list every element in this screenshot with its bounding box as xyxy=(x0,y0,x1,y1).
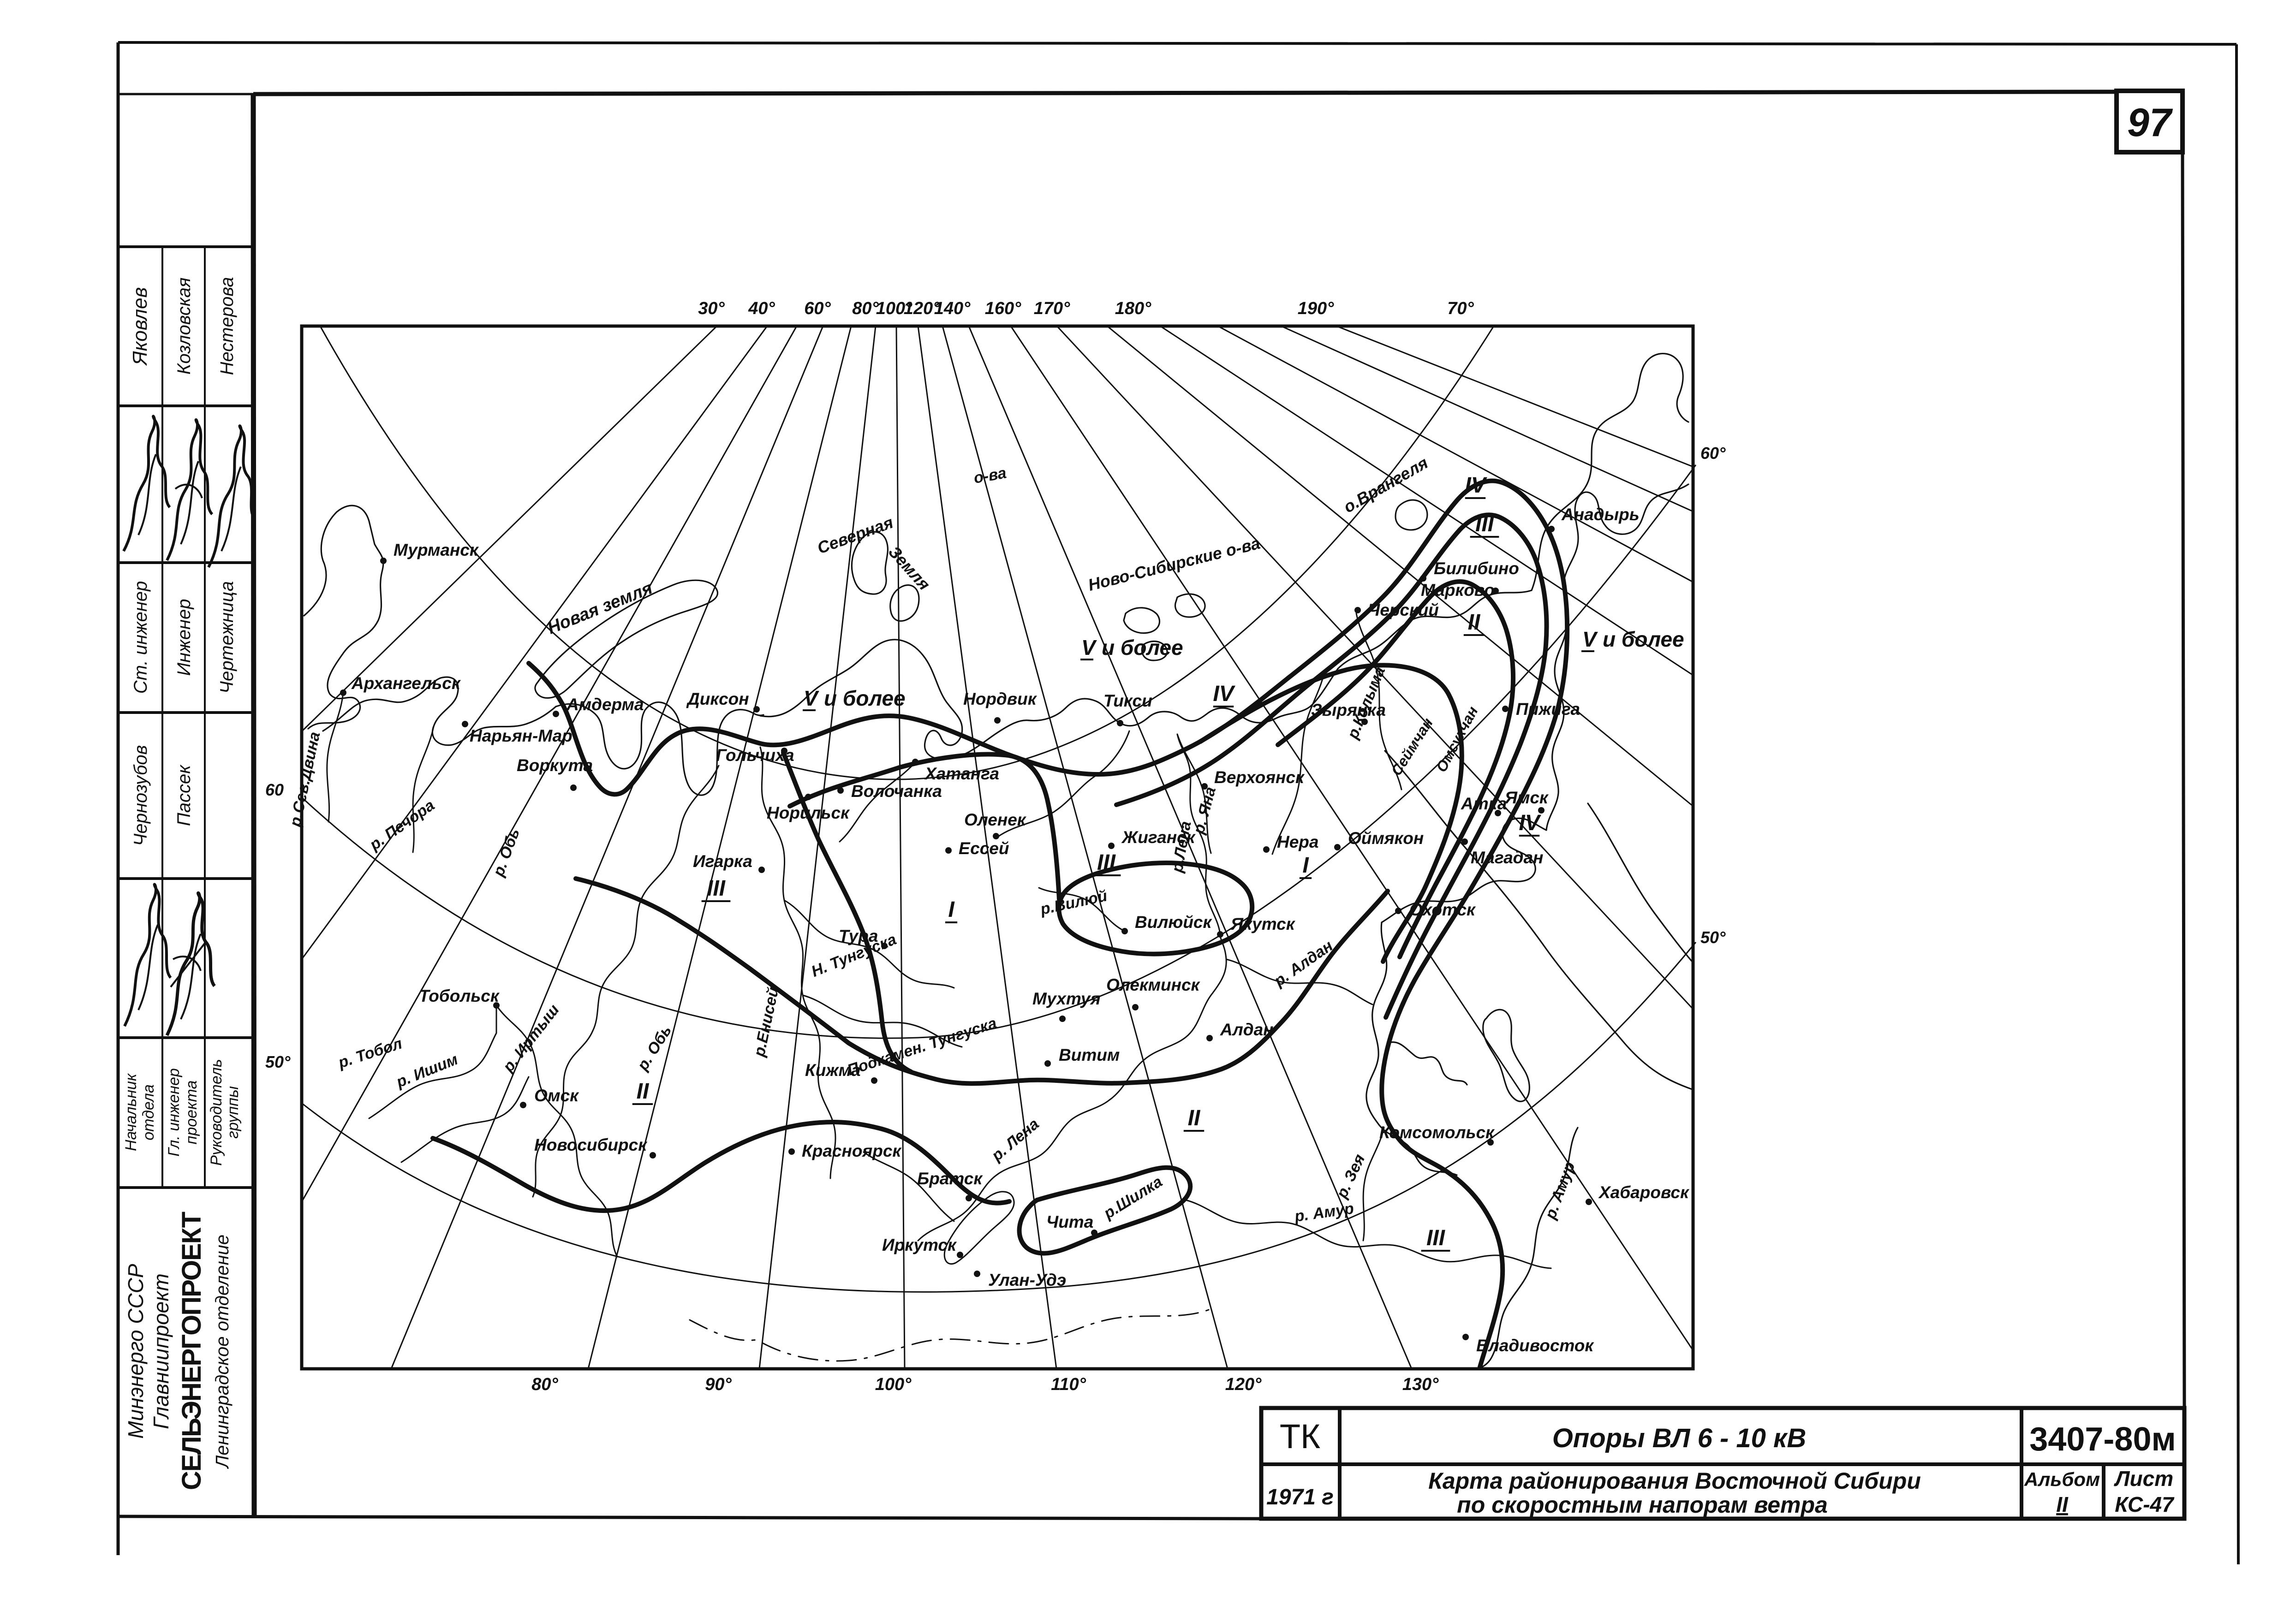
svg-text:Мухтуя: Мухтуя xyxy=(1032,989,1101,1008)
svg-text:80°: 80° xyxy=(531,1375,558,1394)
svg-text:II: II xyxy=(2056,1492,2069,1516)
svg-text:I: I xyxy=(1302,853,1309,878)
svg-text:Начальник: Начальник xyxy=(122,1073,140,1151)
svg-text:Ессей: Ессей xyxy=(959,839,1009,858)
svg-text:IV: IV xyxy=(1519,811,1541,835)
svg-text:1971 г: 1971 г xyxy=(1266,1485,1334,1509)
svg-text:и более: и более xyxy=(824,686,906,710)
svg-text:100°: 100° xyxy=(875,1375,912,1394)
svg-text:Братск: Братск xyxy=(917,1169,983,1188)
svg-text:Мурманск: Мурманск xyxy=(394,541,479,559)
svg-text:130°: 130° xyxy=(1402,1375,1439,1394)
svg-text:160°: 160° xyxy=(985,299,1021,318)
svg-text:Инженер: Инженер xyxy=(174,599,194,676)
svg-text:Вилюйск: Вилюйск xyxy=(1135,913,1213,932)
svg-text:I: I xyxy=(948,897,955,922)
svg-text:Чита: Чита xyxy=(1046,1212,1093,1231)
svg-text:IV: IV xyxy=(1465,473,1487,498)
svg-text:Яковлев: Яковлев xyxy=(129,287,151,366)
svg-text:Омск: Омск xyxy=(534,1086,579,1105)
svg-text:Ст. инженер: Ст. инженер xyxy=(131,581,151,694)
svg-text:Ямск: Ямск xyxy=(1504,788,1549,807)
svg-text:50°: 50° xyxy=(1700,928,1726,947)
svg-text:180°: 180° xyxy=(1115,299,1151,318)
svg-text:60°: 60° xyxy=(1700,444,1726,463)
svg-text:и более: и более xyxy=(1603,627,1684,651)
svg-text:Тобольск: Тобольск xyxy=(419,986,500,1005)
svg-text:Владивосток: Владивосток xyxy=(1476,1336,1594,1355)
svg-text:и более: и более xyxy=(1102,636,1183,659)
svg-text:50°: 50° xyxy=(265,1052,291,1071)
svg-text:Чернозубов: Чернозубов xyxy=(131,745,151,846)
svg-text:30°: 30° xyxy=(698,299,725,318)
svg-text:Нордвик: Нордвик xyxy=(963,689,1038,708)
svg-text:Альбом: Альбом xyxy=(2024,1468,2100,1490)
svg-text:Пижига: Пижига xyxy=(1516,700,1580,719)
svg-text:Гольчиха: Гольчиха xyxy=(716,746,794,765)
svg-text:Ленинградское отделение: Ленинградское отделение xyxy=(212,1235,233,1469)
svg-text:КС-47: КС-47 xyxy=(2115,1492,2175,1516)
svg-text:Анадырь: Анадырь xyxy=(1561,505,1640,524)
svg-text:Нарьян-Мар: Нарьян-Мар xyxy=(470,726,573,745)
svg-text:70°: 70° xyxy=(1447,299,1474,318)
svg-text:110°: 110° xyxy=(1051,1375,1086,1394)
svg-text:Лист: Лист xyxy=(2114,1467,2173,1491)
svg-text:Волочанка: Волочанка xyxy=(851,782,942,801)
svg-text:Тикси: Тикси xyxy=(1103,691,1152,710)
svg-text:Карта районирования Вос: Карта районирования Восточной Сибири xyxy=(1428,1468,1921,1494)
svg-text:ТК: ТК xyxy=(1280,1417,1320,1456)
svg-text:отдела: отдела xyxy=(140,1084,157,1141)
svg-text:Оймякон: Оймякон xyxy=(1348,829,1424,848)
svg-text:Нера: Нера xyxy=(1277,832,1318,851)
svg-text:Билибино: Билибино xyxy=(1434,559,1519,578)
svg-text:Оленек: Оленек xyxy=(964,810,1027,829)
svg-text:СЕЛЬЭНЕРГОПРОЕКТ: СЕЛЬЭНЕРГОПРОЕКТ xyxy=(177,1212,207,1490)
svg-text:V: V xyxy=(1582,627,1598,651)
svg-text:Верхоянск: Верхоянск xyxy=(1214,768,1305,787)
svg-text:V: V xyxy=(804,686,819,710)
svg-text:Опоры ВЛ 6 - 10 кВ: Опоры ВЛ 6 - 10 кВ xyxy=(1552,1423,1807,1453)
svg-text:Алдан: Алдан xyxy=(1220,1020,1274,1039)
svg-text:Магадан: Магадан xyxy=(1471,848,1544,867)
svg-text:Витим: Витим xyxy=(1059,1046,1120,1064)
svg-text:120°: 120° xyxy=(1225,1375,1262,1394)
svg-text:Козловская: Козловская xyxy=(174,278,194,374)
svg-text:190°: 190° xyxy=(1298,299,1334,318)
svg-text:Хатанга: Хатанга xyxy=(924,764,999,783)
svg-text:Чертежница: Чертежница xyxy=(217,581,237,694)
svg-text:Пассек: Пассек xyxy=(174,764,194,826)
svg-text:Нестерова: Нестерова xyxy=(217,277,237,375)
svg-text:Норильск: Норильск xyxy=(767,803,850,822)
svg-text:60: 60 xyxy=(265,780,284,799)
svg-text:140°: 140° xyxy=(934,299,971,318)
svg-text:III: III xyxy=(1097,850,1116,875)
svg-text:60°: 60° xyxy=(804,299,831,318)
svg-text:Новосибирск: Новосибирск xyxy=(534,1135,648,1154)
svg-text:Диксон: Диксон xyxy=(686,689,749,708)
svg-text:80°: 80° xyxy=(852,299,879,318)
svg-text:40°: 40° xyxy=(748,299,775,318)
svg-text:Якутск: Якутск xyxy=(1230,915,1296,933)
svg-text:II: II xyxy=(1188,1106,1201,1130)
svg-text:Марково: Марково xyxy=(1421,581,1495,600)
svg-text:Руководитель: Руководитель xyxy=(208,1059,225,1165)
svg-text:III: III xyxy=(1426,1226,1446,1250)
svg-text:Охотск: Охотск xyxy=(1409,900,1476,919)
svg-text:Олекминск: Олекминск xyxy=(1106,975,1201,994)
svg-text:Гл. инженер: Гл. инженер xyxy=(165,1068,183,1157)
svg-text:90°: 90° xyxy=(705,1375,732,1394)
svg-text:Воркута: Воркута xyxy=(517,756,593,775)
svg-text:проекта: проекта xyxy=(183,1081,200,1145)
svg-text:V: V xyxy=(1081,636,1097,659)
svg-text:Амдерма: Амдерма xyxy=(566,695,644,714)
svg-text:III: III xyxy=(1475,512,1495,536)
svg-text:Архангельск: Архангельск xyxy=(351,674,461,693)
svg-text:Главниипроект: Главниипроект xyxy=(149,1273,173,1429)
svg-text:II: II xyxy=(1468,610,1481,635)
svg-text:Хабаровск: Хабаровск xyxy=(1598,1183,1690,1202)
svg-text:IV: IV xyxy=(1213,682,1235,706)
svg-text:Черский: Черский xyxy=(1368,600,1439,619)
svg-text:Комсомольск: Комсомольск xyxy=(1379,1123,1495,1142)
svg-text:III: III xyxy=(707,876,726,901)
svg-text:97: 97 xyxy=(2127,101,2173,145)
svg-text:170°: 170° xyxy=(1034,299,1070,318)
svg-text:Красноярск: Красноярск xyxy=(802,1141,902,1160)
svg-text:Улан-Удэ: Улан-Удэ xyxy=(988,1271,1066,1289)
svg-text:Атка: Атка xyxy=(1461,794,1507,813)
svg-text:по скоростным напорам: по скоростным напорам ветра xyxy=(1457,1492,1828,1518)
svg-text:3407-80м: 3407-80м xyxy=(2029,1421,2176,1458)
svg-text:Игарка: Игарка xyxy=(693,852,752,871)
svg-text:Минэнерго СССР: Минэнерго СССР xyxy=(124,1264,148,1439)
svg-text:группы: группы xyxy=(224,1086,242,1139)
svg-text:Иркутск: Иркутск xyxy=(882,1236,957,1254)
svg-text:II: II xyxy=(637,1079,650,1104)
